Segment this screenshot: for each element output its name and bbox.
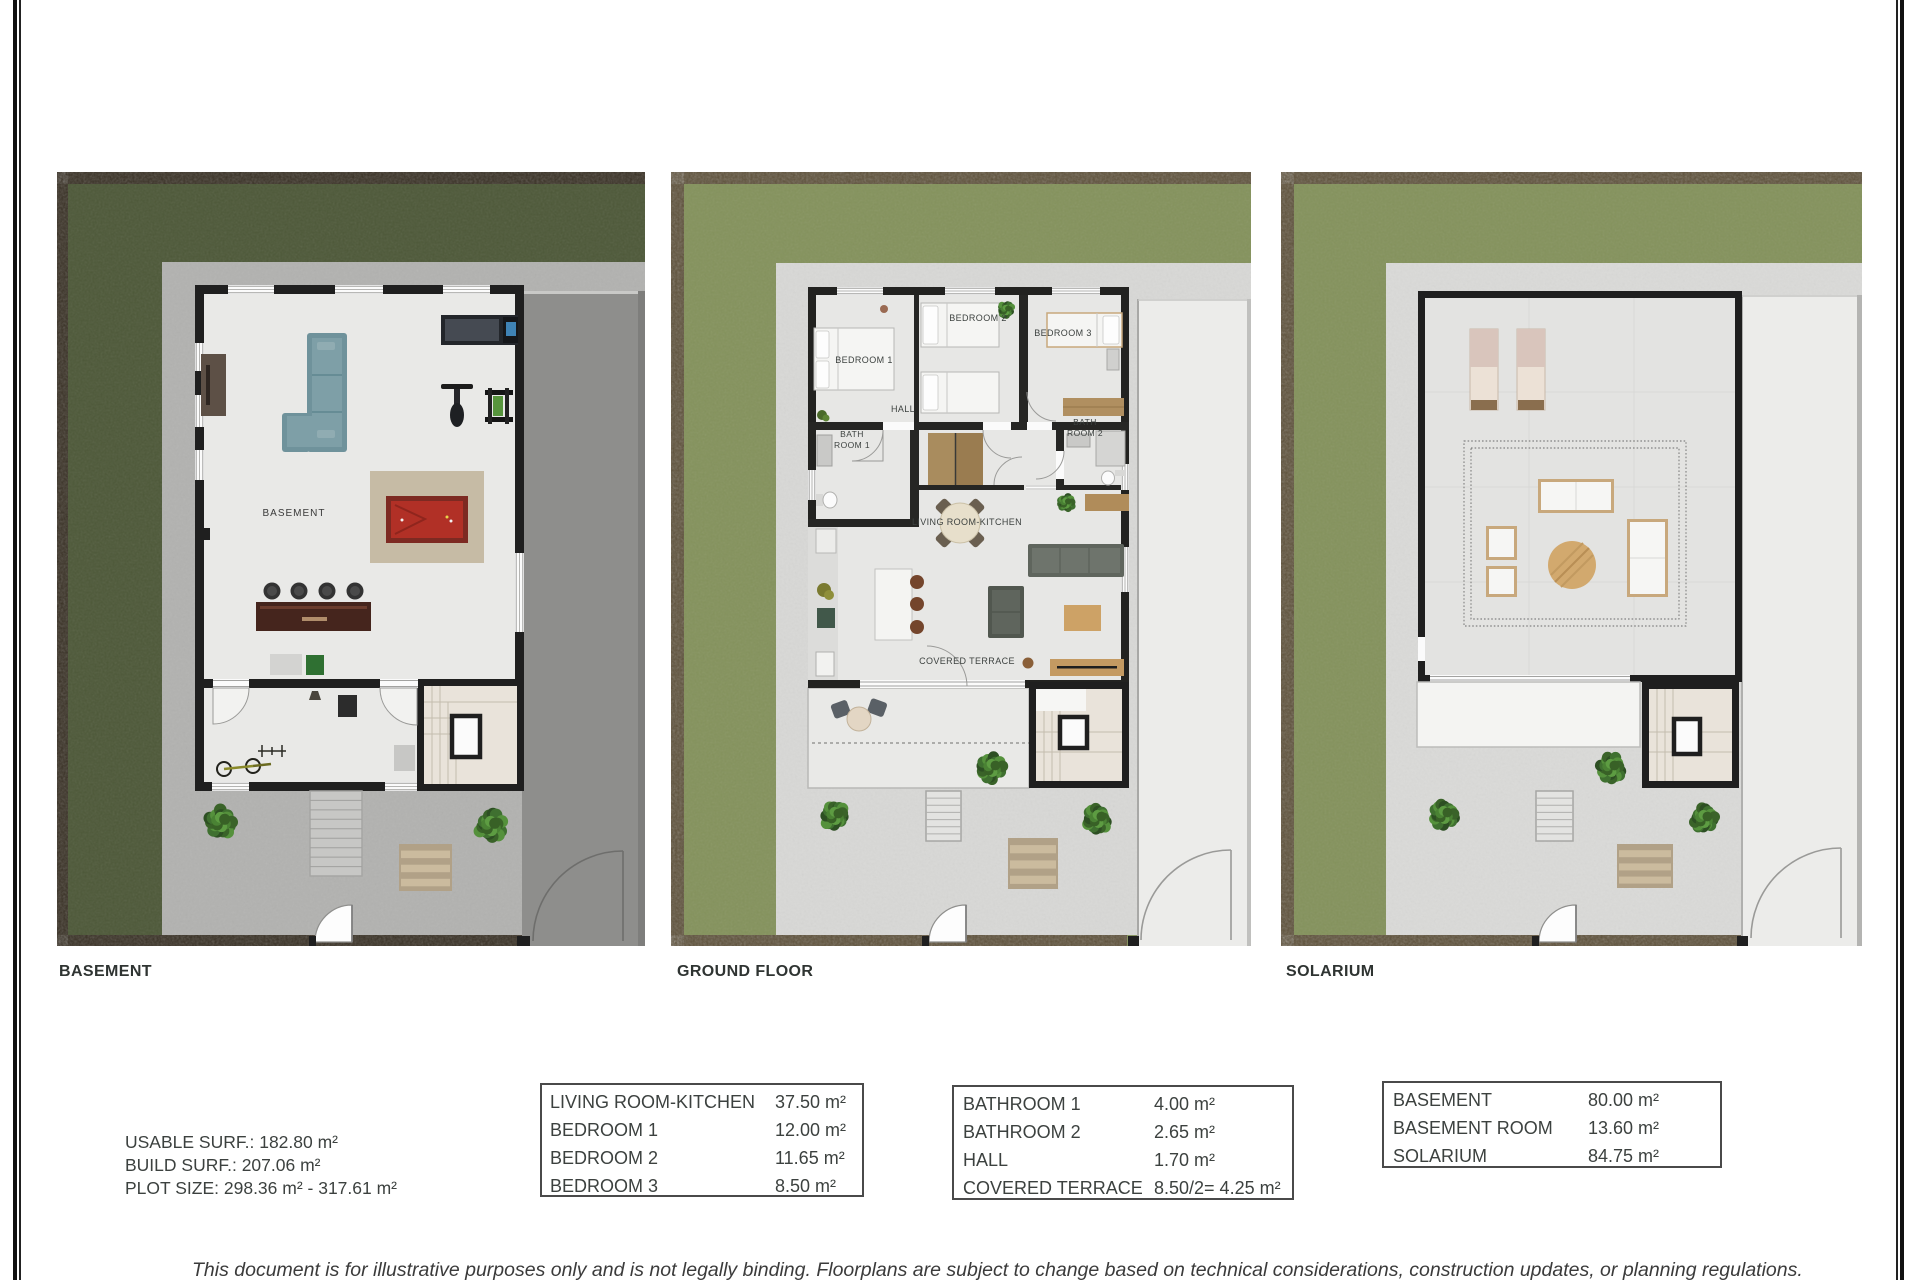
svg-text:BEDROOM 2: BEDROOM 2 [949, 313, 1007, 323]
svg-text:ROOM 1: ROOM 1 [834, 440, 870, 450]
svg-text:COVERED TERRACE: COVERED TERRACE [919, 656, 1015, 666]
svg-text:BEDROOM 1: BEDROOM 1 [835, 355, 893, 365]
svg-text:BASEMENT: BASEMENT [262, 508, 325, 519]
svg-text:BATH: BATH [840, 429, 864, 439]
svg-text:HALL: HALL [891, 404, 915, 414]
svg-text:BEDROOM 3: BEDROOM 3 [1034, 328, 1092, 338]
svg-text:BATH: BATH [1073, 417, 1097, 427]
svg-text:ROOM 2: ROOM 2 [1067, 428, 1103, 438]
svg-text:LIVING ROOM-KITCHEN: LIVING ROOM-KITCHEN [912, 517, 1022, 527]
